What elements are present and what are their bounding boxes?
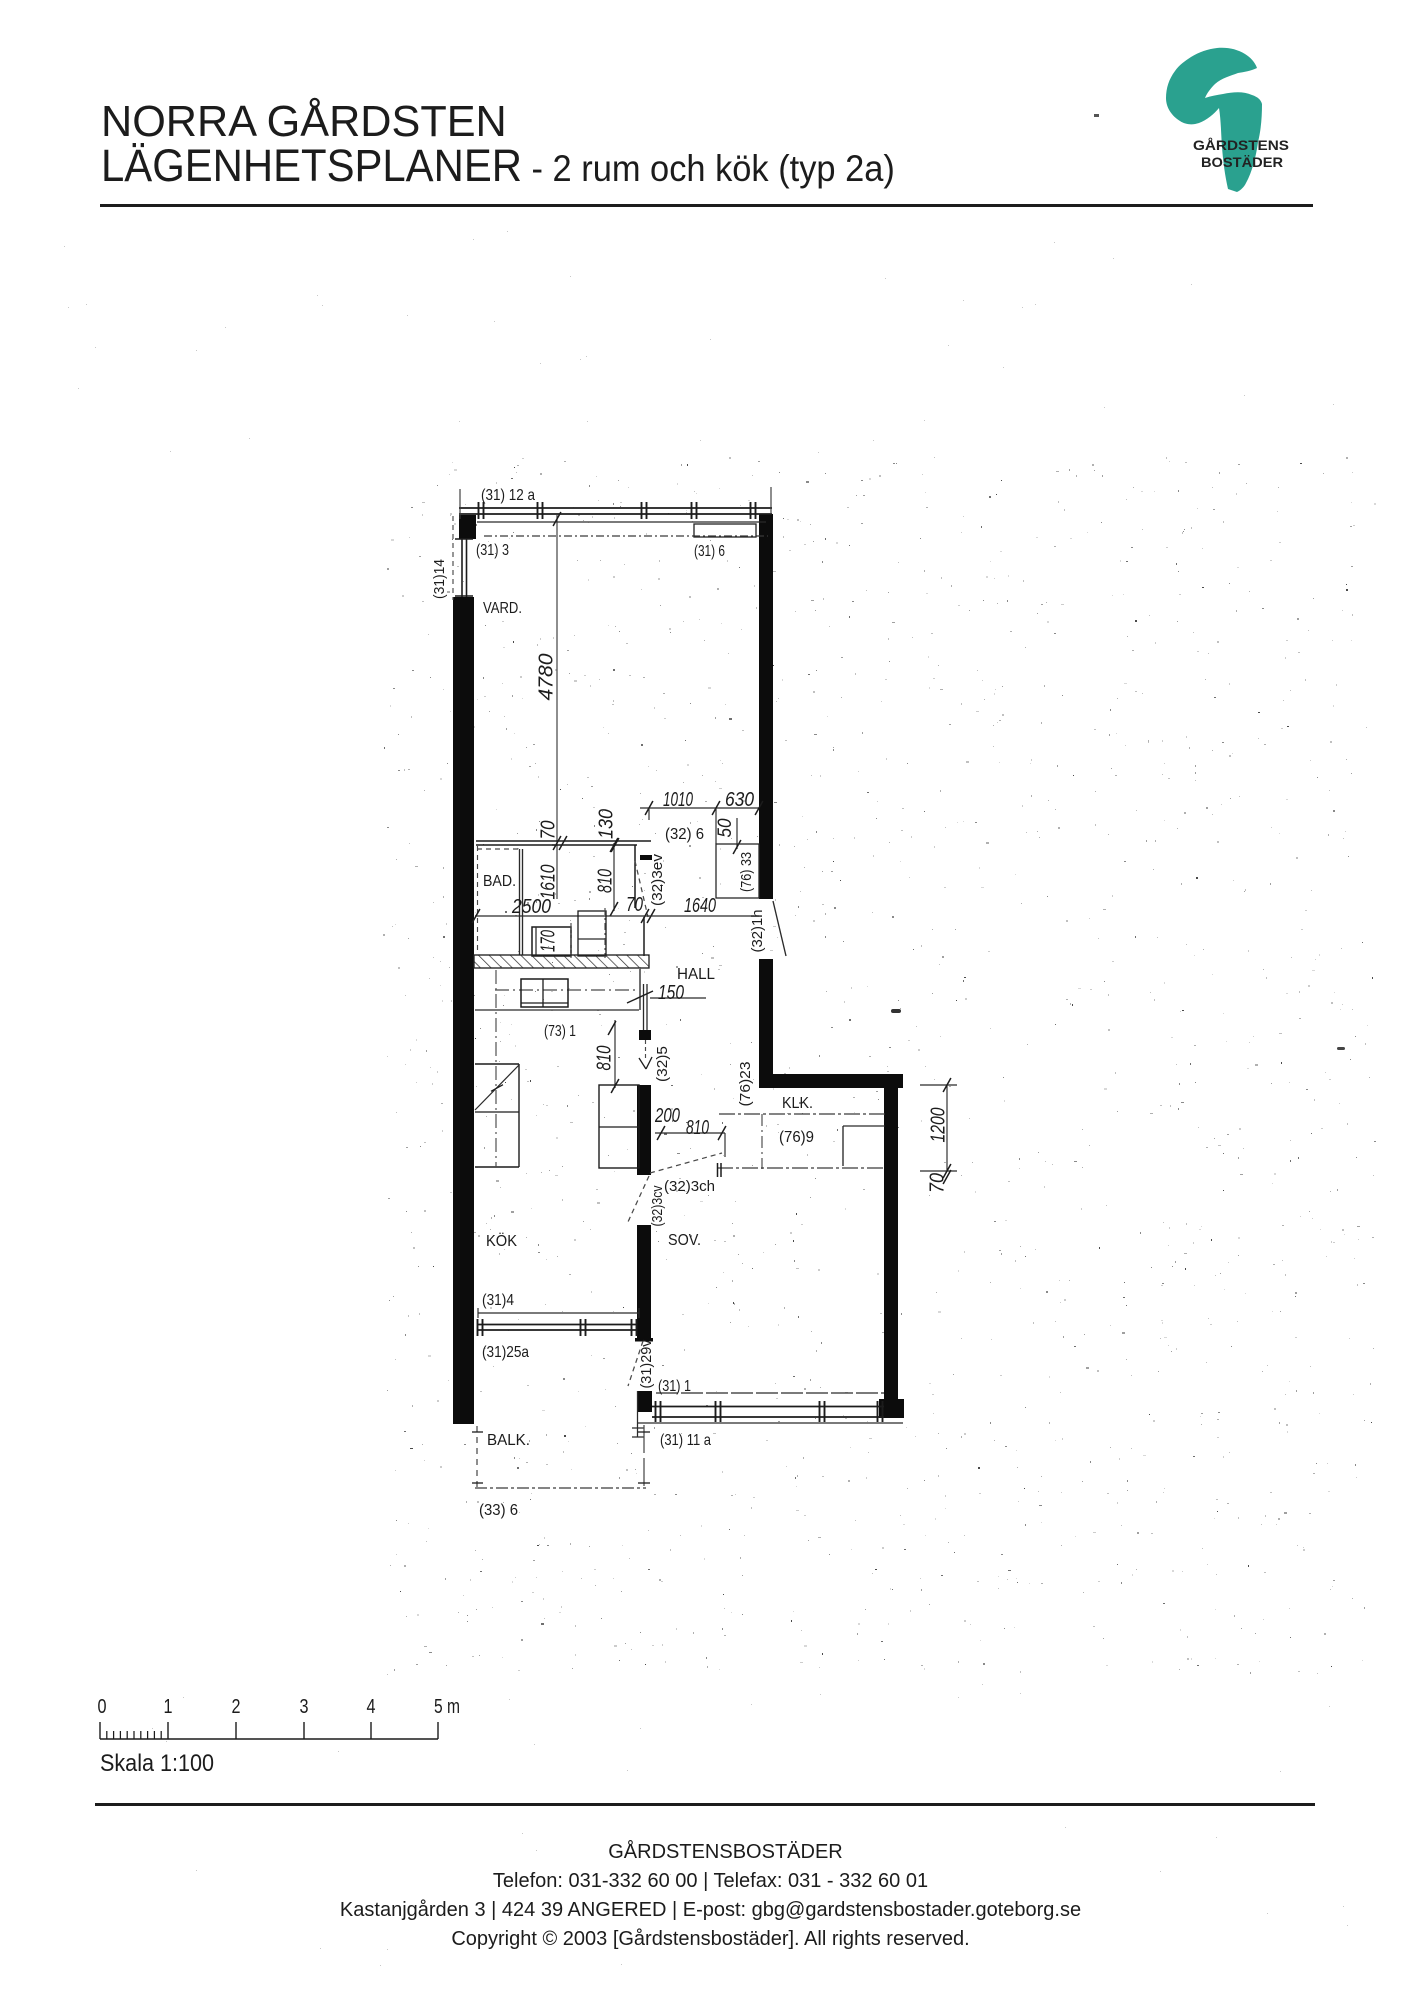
svg-text:(31) 11 a: (31) 11 a bbox=[660, 1432, 711, 1449]
svg-text:(76)23: (76)23 bbox=[737, 1062, 754, 1107]
svg-text:Skala 1:100: Skala 1:100 bbox=[100, 1750, 214, 1777]
svg-text:810: 810 bbox=[593, 1046, 615, 1071]
svg-text:(32)3ch: (32)3ch bbox=[664, 1178, 715, 1195]
svg-text:(32)3cv: (32)3cv bbox=[649, 1185, 666, 1226]
svg-text:BAD.: BAD. bbox=[483, 873, 516, 890]
svg-text:(73) 1: (73) 1 bbox=[544, 1023, 576, 1040]
svg-text:4: 4 bbox=[367, 1696, 376, 1718]
svg-text:(31) 12 a: (31) 12 a bbox=[481, 487, 535, 504]
svg-text:2500: 2500 bbox=[511, 896, 551, 918]
svg-text:1640: 1640 bbox=[684, 895, 716, 917]
svg-text:70: 70 bbox=[537, 821, 559, 840]
svg-text:(32)5: (32)5 bbox=[654, 1046, 671, 1082]
svg-text:(31)14: (31)14 bbox=[431, 559, 448, 599]
svg-text:(31)29v: (31)29v bbox=[638, 1339, 655, 1388]
svg-text:2: 2 bbox=[232, 1696, 241, 1718]
svg-text:BALK.: BALK. bbox=[487, 1432, 530, 1449]
svg-text:810: 810 bbox=[686, 1117, 709, 1139]
svg-text:(31) 6: (31) 6 bbox=[694, 543, 725, 560]
svg-text:(76) 33: (76) 33 bbox=[738, 852, 755, 892]
svg-text:(31) 3: (31) 3 bbox=[476, 542, 509, 559]
svg-text:(31)4: (31)4 bbox=[482, 1292, 514, 1309]
svg-text:(32)1h: (32)1h bbox=[749, 910, 766, 953]
svg-text:130: 130 bbox=[595, 809, 617, 839]
svg-text:170: 170 bbox=[537, 930, 559, 952]
svg-text:70: 70 bbox=[626, 894, 643, 916]
svg-text:KLK.: KLK. bbox=[782, 1095, 813, 1112]
svg-text:(33) 6: (33) 6 bbox=[479, 1502, 518, 1519]
svg-text:SOV.: SOV. bbox=[668, 1232, 701, 1249]
svg-text:BOSTÄDER: BOSTÄDER bbox=[1201, 154, 1283, 170]
svg-text:1610: 1610 bbox=[537, 865, 559, 900]
svg-text:70: 70 bbox=[926, 1173, 948, 1193]
svg-text:(31)25a: (31)25a bbox=[482, 1344, 529, 1361]
svg-text:4780: 4780 bbox=[535, 654, 557, 701]
svg-text:KÖK: KÖK bbox=[486, 1232, 517, 1250]
svg-text:(32)3ev: (32)3ev bbox=[649, 853, 666, 906]
svg-text:(76)9: (76)9 bbox=[779, 1129, 814, 1146]
svg-text:810: 810 bbox=[594, 869, 616, 893]
svg-text:630: 630 bbox=[725, 789, 754, 811]
svg-text:0: 0 bbox=[98, 1696, 107, 1718]
svg-text:150: 150 bbox=[658, 982, 684, 1004]
svg-text:1010: 1010 bbox=[663, 789, 693, 811]
svg-text:5 m: 5 m bbox=[434, 1696, 460, 1718]
svg-text:1: 1 bbox=[164, 1696, 173, 1718]
svg-text:HALL: HALL bbox=[677, 966, 715, 983]
svg-text:GÅRDSTENS: GÅRDSTENS bbox=[1193, 137, 1289, 153]
svg-text:1200: 1200 bbox=[927, 1108, 949, 1143]
svg-text:200: 200 bbox=[654, 1105, 680, 1127]
svg-text:(32) 6: (32) 6 bbox=[665, 826, 704, 843]
svg-text:3: 3 bbox=[300, 1696, 309, 1718]
svg-text:VARD.: VARD. bbox=[483, 600, 522, 617]
svg-text:50: 50 bbox=[715, 818, 736, 837]
